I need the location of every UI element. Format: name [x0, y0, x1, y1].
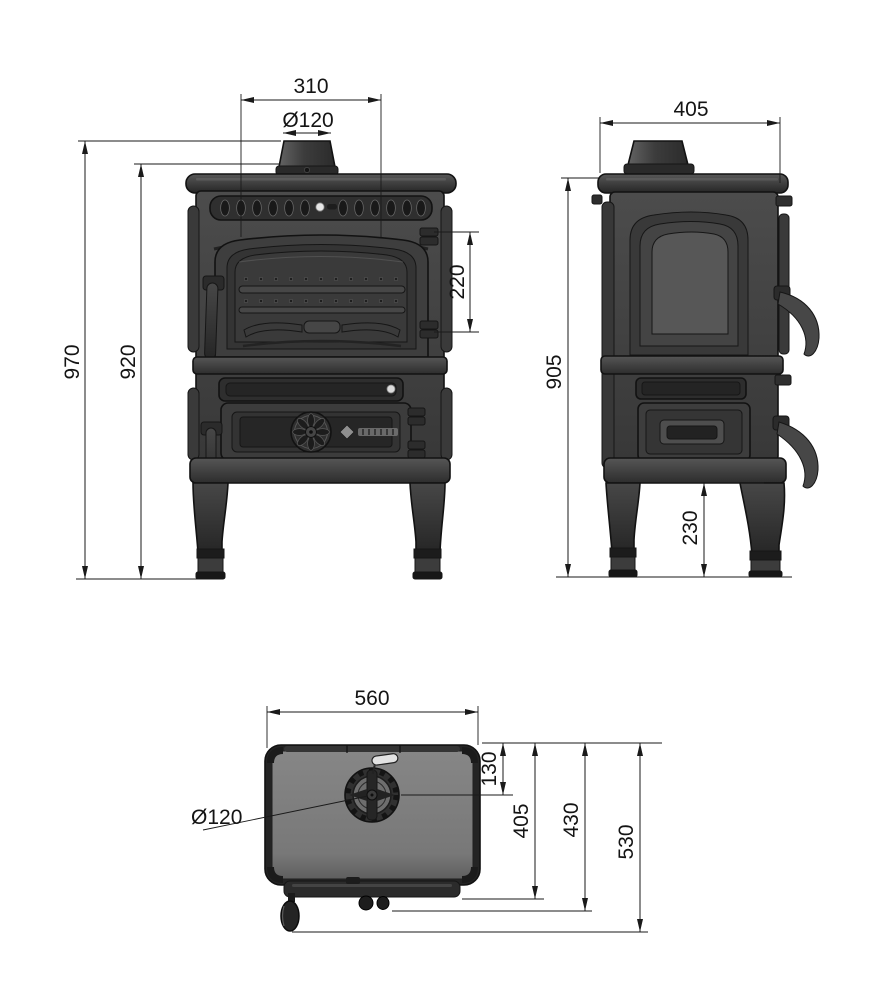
damper-rosette [291, 412, 331, 452]
flue-pipe-front [276, 141, 338, 175]
ash-door [221, 403, 425, 460]
flue-pipe-side [624, 141, 694, 174]
dim-front-overall-height-label: 970 [61, 344, 84, 379]
top-plate-side [598, 174, 788, 193]
dim-front-body-height-label: 920 [117, 344, 140, 379]
top-plate-front [186, 174, 456, 193]
technical-drawing-page: 310 Ø120 970 920 220 [0, 0, 895, 1000]
dim-front-flue-diameter-label: Ø120 [282, 109, 333, 132]
dim-top-flue-diameter-label: Ø120 [191, 806, 242, 829]
lock-pin [387, 385, 395, 393]
top-stove [265, 745, 480, 931]
top-view: 560 Ø120 130 405 430 530 [191, 687, 662, 932]
side-drawer-panel [638, 403, 750, 461]
dim-top-width-label: 560 [354, 687, 389, 710]
flue-collar-top [345, 768, 399, 822]
dim-front-top-width-label: 310 [293, 75, 328, 98]
side-view: 405 905 230 [543, 98, 819, 577]
dim-top-plate-depth-label: 405 [510, 803, 533, 838]
stove-dimension-drawing: 310 Ø120 970 920 220 [0, 0, 895, 1000]
front-legs [193, 483, 445, 579]
dim-side-height-label: 905 [543, 354, 566, 389]
slot-panel [219, 378, 403, 401]
side-front-details [773, 196, 819, 488]
dim-top-body-depth-label: 430 [560, 802, 583, 837]
dim-top-flue-offset-label: 130 [478, 751, 501, 786]
dim-top-overall-depth-label: 530 [615, 824, 638, 859]
dim-side-leg-label: 230 [679, 510, 702, 545]
plinth-front [190, 458, 450, 483]
side-stove [592, 141, 819, 577]
vent-grille [210, 196, 432, 220]
top-front-edge [281, 877, 460, 931]
vent-knob [316, 203, 324, 211]
dim-front-window-height-label: 220 [446, 264, 469, 299]
front-view: 310 Ø120 970 920 220 [61, 75, 479, 579]
mid-band [193, 357, 447, 374]
front-stove [186, 141, 456, 579]
fire-door [215, 235, 428, 357]
door-knob-top [281, 893, 299, 931]
dim-side-depth-label: 405 [673, 98, 708, 121]
side-panel [630, 212, 748, 355]
